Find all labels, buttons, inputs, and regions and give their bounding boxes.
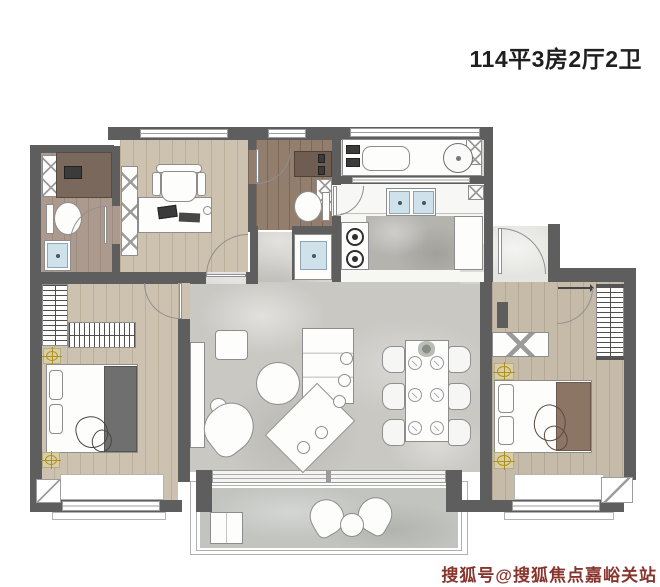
wall-segment: [332, 214, 341, 282]
dining-chair-icon: [382, 383, 405, 410]
sofa-cushion: [315, 426, 328, 439]
kitchen-counter: [454, 216, 483, 270]
wall-segment: [548, 268, 636, 282]
door-gap: [248, 150, 256, 184]
side-table-icon: [215, 330, 248, 360]
wardrobe-cap: [596, 284, 624, 288]
door-gap: [112, 206, 120, 244]
window-sill: [504, 512, 614, 520]
bay-window-bench: [514, 474, 604, 500]
vanity-sink-icon: [64, 166, 82, 179]
keyboard-icon: [179, 212, 200, 222]
window: [140, 129, 228, 138]
wall-segment: [30, 146, 41, 282]
corner-window: [601, 477, 633, 503]
window: [350, 128, 480, 137]
floor-plan-image: 114平3房2厅2卫: [0, 0, 660, 587]
stove-burner-icon: [346, 250, 364, 268]
plate-icon: [408, 421, 422, 435]
wardrobe-cap: [596, 356, 624, 360]
bookshelf-icon: [121, 166, 138, 256]
balcony-cabinet-icon: [210, 512, 243, 544]
pillow-icon: [49, 370, 63, 400]
kitchen-threshold: [340, 272, 484, 282]
wall-segment: [548, 224, 560, 274]
desk-lamp-icon: [203, 206, 212, 215]
nightstand-lamp-icon: [42, 452, 60, 468]
wall-segment: [292, 226, 336, 234]
plate-icon: [430, 388, 444, 402]
wall-segment: [497, 302, 508, 328]
faucet-icon: [318, 154, 325, 163]
dining-chair-icon: [382, 419, 405, 446]
plan-title: 114平3房2厅2卫: [470, 40, 642, 74]
nightstand-lamp-icon: [494, 452, 514, 469]
window-sill: [52, 512, 166, 520]
cabinet-icon: [492, 332, 549, 357]
plate-icon: [408, 388, 422, 402]
nightstand-lamp-icon: [494, 363, 514, 380]
pillow-icon: [498, 416, 514, 445]
balcony-table-icon: [340, 513, 364, 537]
centerpiece-icon: [417, 341, 436, 357]
window: [512, 501, 600, 511]
cabinet-icon: [468, 185, 484, 200]
plate-icon: [430, 356, 444, 370]
wardrobe-icon: [68, 322, 136, 348]
bathtub-icon: [362, 146, 410, 171]
window: [62, 501, 160, 511]
washbasin-icon: [47, 243, 68, 268]
office-chair-icon: [161, 171, 197, 202]
coffee-table-icon: [256, 362, 300, 405]
kitchen-sink-icon: [413, 191, 434, 214]
dining-chair-icon: [448, 346, 471, 373]
wall-segment: [30, 272, 122, 284]
wall-segment: [196, 470, 212, 512]
wardrobe-icon: [42, 284, 68, 346]
vanity-icon: [294, 151, 332, 177]
nightstand-lamp-icon: [43, 348, 61, 364]
sliding-door-divider: [326, 471, 331, 482]
toilet-tank-icon: [46, 204, 54, 234]
dining-chair-icon: [448, 419, 471, 446]
sofa-cushion: [338, 374, 351, 387]
plate-icon: [408, 356, 422, 370]
laundry-sink-icon: [346, 158, 360, 167]
chair-armrest: [152, 172, 161, 196]
washing-machine-icon: [443, 143, 473, 173]
washbasin-icon: [300, 241, 327, 270]
bay-window-bench: [60, 474, 164, 500]
chair-armrest: [197, 172, 206, 196]
floor-plan: [0, 0, 660, 587]
laundry-sink-icon: [346, 145, 360, 154]
dining-chair-icon: [448, 383, 471, 410]
plate-icon: [430, 421, 444, 435]
kitchen-island-counter: [366, 216, 460, 270]
wall-segment: [480, 282, 492, 504]
wall-segment: [624, 280, 636, 480]
faucet-icon: [318, 166, 325, 175]
window: [352, 177, 470, 183]
sofa-cushion: [340, 352, 353, 365]
sofa-cushion: [333, 395, 346, 408]
pillow-icon: [498, 384, 514, 413]
toilet-tank-icon: [322, 192, 330, 221]
window: [268, 129, 306, 138]
toilet-icon: [294, 191, 322, 222]
wardrobe-icon: [596, 286, 624, 358]
dining-chair-icon: [382, 346, 405, 373]
corner-window: [36, 479, 61, 503]
sofa-cushion: [297, 441, 310, 454]
stove-burner-icon: [346, 228, 364, 246]
watermark-text: 搜狐号@搜狐焦点嘉峪关站: [441, 561, 657, 586]
wall-segment: [30, 282, 42, 512]
kitchen-sink-icon: [389, 191, 410, 214]
wall-segment: [484, 127, 493, 282]
pillow-icon: [49, 404, 63, 434]
